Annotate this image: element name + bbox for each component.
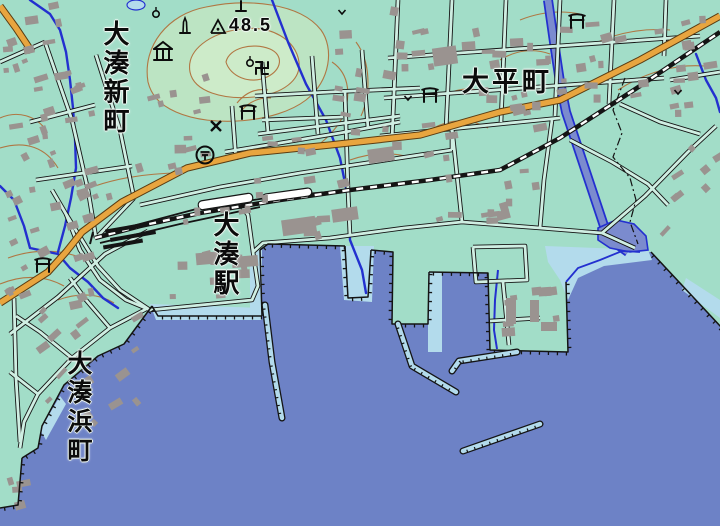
- map-viewport[interactable]: 大湊新町 大平町 大湊駅 大湊浜町 48.5: [0, 0, 720, 526]
- label-ominato-hamamachi: 大湊浜町: [60, 350, 96, 466]
- label-taihei-cho: 大平町: [462, 60, 552, 99]
- label-ominato-shinmachi: 大湊新町: [97, 20, 134, 136]
- label-ominato-station: 大湊駅: [207, 211, 244, 298]
- label-elevation-value: 48.5: [229, 15, 272, 36]
